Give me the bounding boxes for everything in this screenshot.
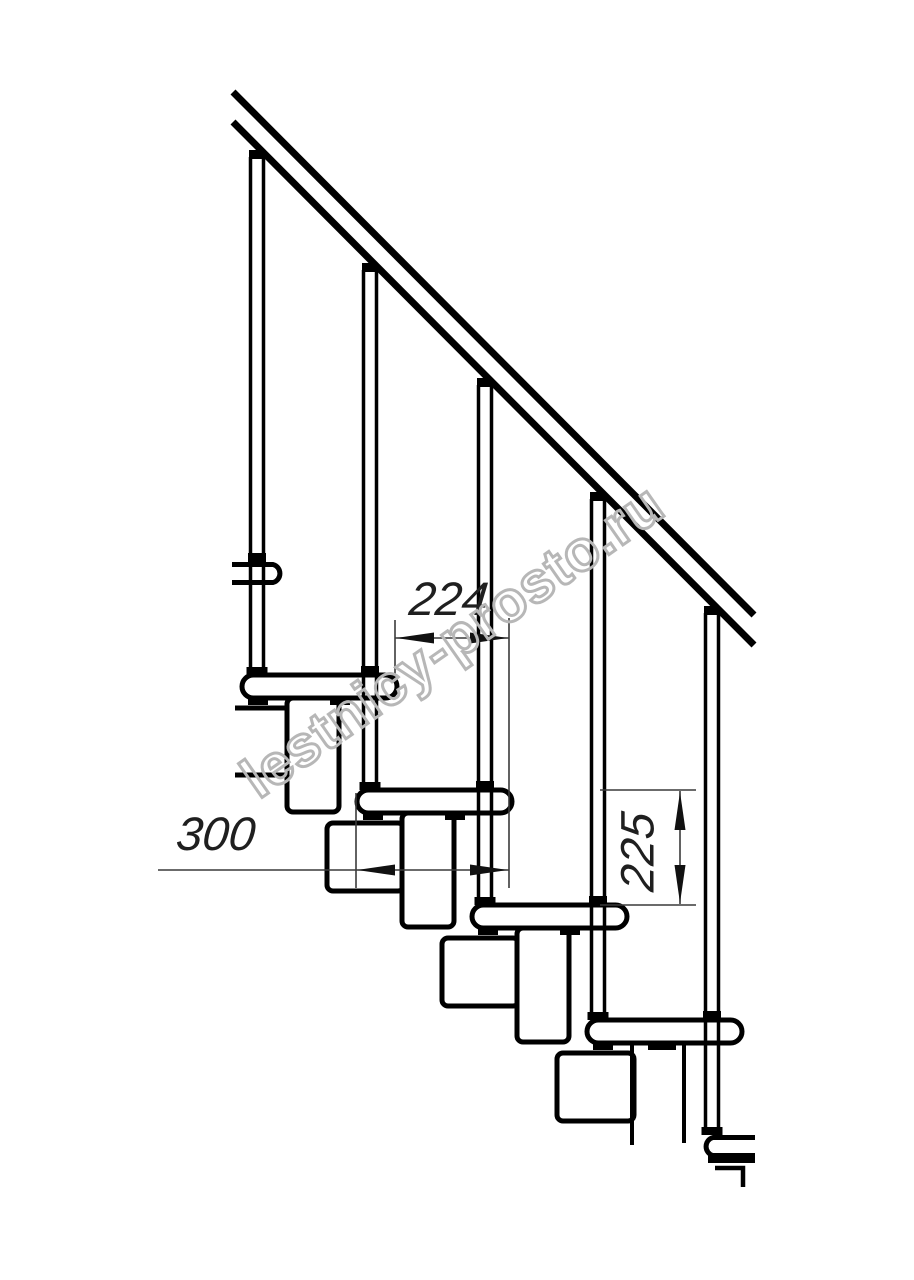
handrail — [233, 92, 754, 645]
handrail-inner-line — [233, 122, 754, 645]
arrow-up — [675, 792, 686, 830]
tread-6 — [706, 1138, 755, 1156]
baluster-tread-clamp — [703, 1011, 721, 1020]
baluster-2 — [360, 263, 381, 790]
module-stem-4 — [517, 928, 569, 1042]
dimension-label-tread-length: 300 — [164, 810, 269, 857]
baluster-base-flange — [588, 1012, 609, 1020]
baluster-1 — [247, 150, 268, 675]
module-seat-4 — [442, 938, 519, 1006]
tread-1 — [232, 565, 280, 583]
module-stem-2 — [287, 698, 339, 812]
baluster-post — [364, 270, 377, 788]
baluster-base-flange — [247, 667, 268, 675]
baluster-tread-clamp — [248, 553, 266, 562]
handrail-outer-line — [233, 92, 754, 615]
baluster-base-flange — [360, 782, 381, 790]
module-seat-6 — [715, 1168, 743, 1187]
arrow-left — [396, 633, 434, 644]
tread-2 — [242, 675, 397, 698]
dimension-label-run: 224 — [401, 575, 498, 622]
treads — [232, 565, 755, 1156]
baluster-base-flange — [702, 1127, 723, 1135]
baluster-tread-clamp — [589, 896, 607, 905]
arrow-right — [470, 633, 508, 644]
module-seat-2 — [235, 708, 289, 775]
baluster-post — [251, 157, 264, 673]
dimension-label-rise: 225 — [614, 801, 661, 902]
baluster-5 — [702, 606, 723, 1135]
module-seat-3 — [327, 823, 404, 891]
baluster-base-flange — [475, 897, 496, 905]
baluster-post — [592, 499, 605, 1018]
baluster-tread-clamp — [476, 781, 494, 790]
baluster-4 — [588, 492, 609, 1020]
tread-3 — [357, 790, 512, 813]
arrow-down — [675, 865, 686, 903]
technical-drawing-canvas: 224 300 225 lestnicy-prosto.ru — [0, 0, 914, 1280]
baluster-tread-clamp — [361, 666, 379, 675]
baluster-post — [706, 613, 719, 1133]
module-seat-5 — [557, 1053, 634, 1121]
arrow-right — [470, 865, 508, 876]
staircase-line-art — [0, 0, 914, 1280]
baluster-post — [479, 385, 492, 903]
module-stem-5 — [632, 1043, 684, 1145]
